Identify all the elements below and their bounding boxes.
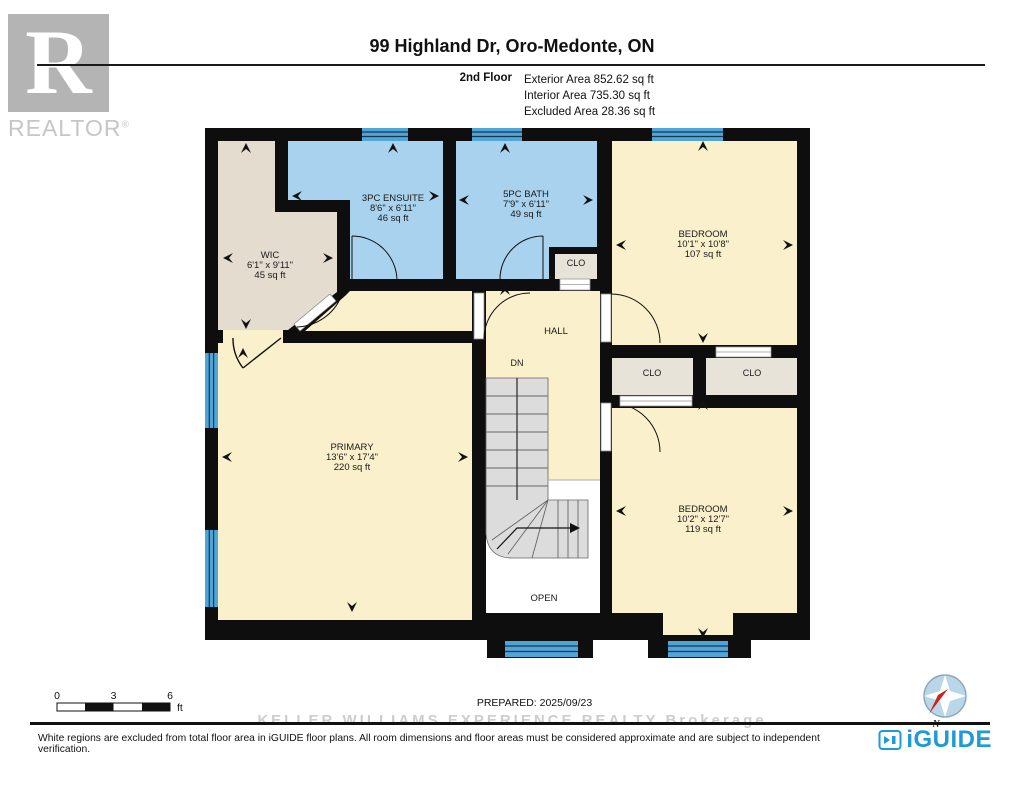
floor-plan-page: R REALTOR® 99 Highland Dr, Oro-Medonte, …: [0, 0, 1024, 791]
iguide-icon: [878, 728, 902, 752]
closet-right-label: CLO: [743, 368, 762, 378]
disclaimer-text: White regions are excluded from total fl…: [38, 733, 868, 755]
bath-area: 49 sq ft: [510, 209, 542, 220]
iguide-logo: iGUIDE: [878, 726, 992, 754]
bath-closet-label: CLO: [567, 258, 586, 268]
hall-label: HALL: [544, 326, 568, 337]
bedroom-top-door-leaf: [601, 294, 611, 342]
bedroom-bottom-area: 119 sq ft: [685, 524, 721, 535]
window-top-1: [362, 128, 408, 141]
bedroom-bottom-door-leaf: [601, 403, 611, 451]
window-top-2: [472, 128, 522, 141]
window-left-1: [205, 353, 218, 428]
wic-door-opening: [223, 330, 283, 344]
window-top-3: [652, 128, 723, 141]
closet-left-label: CLO: [643, 368, 662, 378]
open-label: OPEN: [531, 593, 558, 604]
footer-divider: [30, 722, 990, 725]
prepared-date: PREPARED: 2025/09/23: [45, 697, 1024, 709]
primary-area: 220 sq ft: [334, 462, 371, 473]
floor-plan-drawing: WIC 6'1" x 9'11" 45 sq ft 3PC ENSUITE 8'…: [0, 0, 1024, 791]
down-label: DN: [511, 358, 524, 368]
window-left-2: [205, 530, 218, 607]
primary-floor: [218, 343, 472, 620]
iguide-wordmark: iGUIDE: [906, 726, 992, 754]
hall-door-leaf: [474, 293, 484, 339]
title-divider: [37, 64, 985, 66]
bedroom-top-area: 107 sq ft: [685, 249, 722, 260]
ensuite-area: 46 sq ft: [377, 213, 409, 224]
window-bottom-1: [505, 641, 578, 657]
window-bottom-2: [668, 641, 728, 657]
wic-area: 45 sq ft: [254, 270, 286, 281]
